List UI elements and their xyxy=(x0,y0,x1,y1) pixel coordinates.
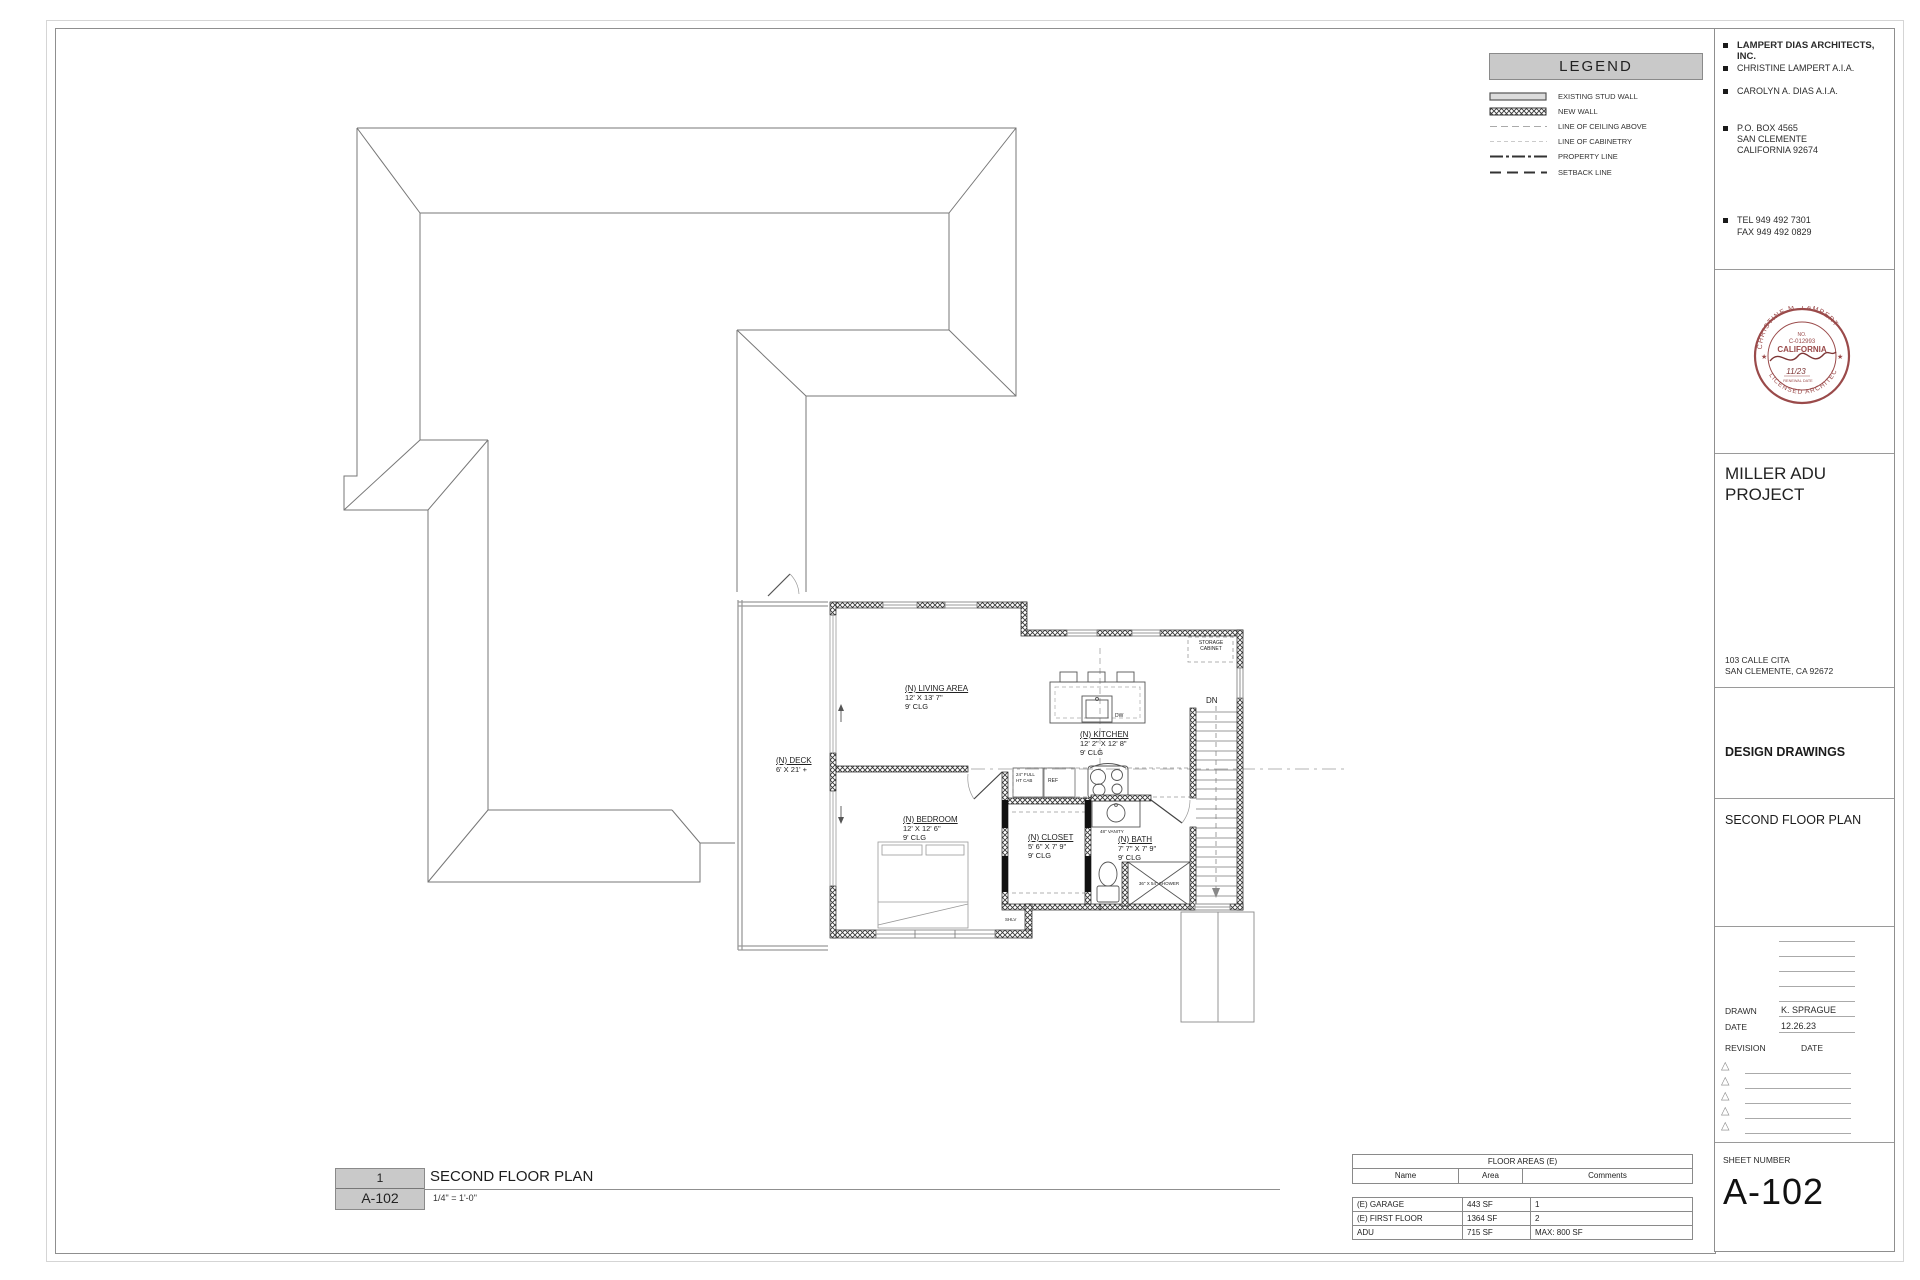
bullet-icon xyxy=(1723,218,1728,223)
stamp-star-right-icon: ★ xyxy=(1837,353,1843,361)
dw-label: DW xyxy=(1115,714,1123,720)
architect-1: CHRISTINE LAMPERT A.I.A. xyxy=(1737,63,1854,73)
revision-triangle-icon: △ xyxy=(1721,1076,1729,1087)
ceiling-line-symbol xyxy=(1489,121,1549,132)
revision-rule xyxy=(1745,1088,1851,1089)
floor-areas-rows: (E) GARAGE 443 SF 1 (E) FIRST FLOOR 1364… xyxy=(1352,1197,1693,1240)
door-slide-arrows xyxy=(838,704,844,824)
setback-line-symbol xyxy=(1489,167,1549,178)
stamp-renewal-label: RENEWAL DATE xyxy=(1783,379,1813,383)
bath-label: (N) BATH 7' 7" X 7' 9" 9' CLG xyxy=(1118,835,1156,862)
drawn-value: K. SPRAGUE xyxy=(1781,1005,1836,1015)
legend-title: LEGEND xyxy=(1489,53,1703,80)
closet-label: (N) CLOSET 5' 6" X 7' 9" 9' CLG xyxy=(1028,833,1073,860)
table-row: (E) FIRST FLOOR 1364 SF 2 xyxy=(1353,1212,1692,1226)
project-address-1: 103 CALLE CITA xyxy=(1725,655,1790,665)
bullet-icon xyxy=(1723,89,1728,94)
deck-gate-door xyxy=(768,574,799,596)
revision-triangle-icon: △ xyxy=(1721,1121,1729,1132)
legend-item-property-line: PROPERTY LINE xyxy=(1489,150,1618,162)
floor-areas-spacer xyxy=(1352,1184,1693,1197)
table-row: ADU 715 SF MAX: 800 SF xyxy=(1353,1226,1692,1239)
storage-cabinet-label: STORAGE CABINET xyxy=(1191,641,1231,652)
date-value: 12.26.23 xyxy=(1781,1021,1816,1031)
firm-address-2: SAN CLEMENTE xyxy=(1737,134,1807,144)
tb-divider-1 xyxy=(1715,269,1894,270)
floor-areas-header-row: Name Area Comments xyxy=(1352,1169,1693,1184)
drawn-rule xyxy=(1779,1016,1855,1017)
revision-triangle-icon: △ xyxy=(1721,1061,1729,1072)
table-row: (E) GARAGE 443 SF 1 xyxy=(1353,1198,1692,1212)
legend-item-existing-wall: EXISTING STUD WALL xyxy=(1489,90,1638,102)
drawing-title: SECOND FLOOR PLAN xyxy=(430,1168,593,1185)
header-area: Area xyxy=(1459,1169,1523,1183)
living-room-label: (N) LIVING AREA 12' X 13' 7" 9' CLG xyxy=(905,684,968,711)
bullet-icon xyxy=(1723,126,1728,131)
sheet-title: SECOND FLOOR PLAN xyxy=(1725,813,1861,827)
blank-rule xyxy=(1779,971,1855,972)
tb-divider-6 xyxy=(1715,1142,1894,1143)
deck-label: (N) DECK 6' X 21' + xyxy=(776,756,812,774)
sheet-number: A-102 xyxy=(1723,1171,1824,1213)
full-ht-cab-label: 24" FULL HT CAB xyxy=(1016,772,1038,783)
blank-rule xyxy=(1779,956,1855,957)
floor-plan-drawing xyxy=(0,0,1920,1280)
stamp-no-label: NO. xyxy=(1798,332,1807,338)
project-title: MILLER ADU PROJECT xyxy=(1725,463,1875,505)
interior-walls xyxy=(836,708,1196,910)
floor-areas-title: FLOOR AREAS (E) xyxy=(1352,1154,1693,1169)
revision-rule xyxy=(1745,1073,1851,1074)
drawn-label: DRAWN xyxy=(1725,1006,1757,1016)
stamp-date: 11/23 xyxy=(1786,367,1806,376)
firm-tel: TEL 949 492 7301 xyxy=(1737,215,1811,225)
revision-triangle-icon: △ xyxy=(1721,1091,1729,1102)
legend-item-cabinetry: LINE OF CABINETRY xyxy=(1489,135,1632,147)
architect-2: CAROLYN A. DIAS A.I.A. xyxy=(1737,86,1838,96)
bed xyxy=(878,842,968,928)
doors xyxy=(968,772,1190,823)
detail-reference-bubble: 1 A-102 xyxy=(335,1168,425,1210)
drawing-title-rule xyxy=(425,1189,1280,1190)
floor-areas-table: FLOOR AREAS (E) Name Area Comments (E) G… xyxy=(1352,1154,1693,1240)
drawing-scale: 1/4" = 1'-0" xyxy=(433,1193,477,1203)
architect-stamp: CHRISTINE M. LAMPERT LICENSED ARCHITECT … xyxy=(1752,306,1852,406)
bullet-icon xyxy=(1723,66,1728,71)
firm-fax: FAX 949 492 0829 xyxy=(1737,227,1812,237)
revision-rule xyxy=(1745,1118,1851,1119)
revision-date-label: DATE xyxy=(1801,1043,1823,1053)
stairs xyxy=(1196,706,1237,898)
project-address-2: SAN CLEMENTE, CA 92672 xyxy=(1725,666,1833,676)
revision-rule xyxy=(1745,1133,1851,1134)
sheet-number-label: SHEET NUMBER xyxy=(1723,1155,1790,1165)
detail-number: 1 xyxy=(336,1169,424,1189)
tb-divider-5 xyxy=(1715,926,1894,927)
kitchen-label: (N) KITCHEN 12' 2" X 12' 8" 9' CLG xyxy=(1080,730,1128,757)
firm-address-3: CALIFORNIA 92674 xyxy=(1737,145,1818,155)
blank-rule xyxy=(1779,1001,1855,1002)
date-rule xyxy=(1779,1032,1855,1033)
firm-name: LAMPERT DIAS ARCHITECTS, INC. xyxy=(1737,40,1894,62)
legend-item-new-wall: NEW WALL xyxy=(1489,105,1598,117)
legend-item-setback-line: SETBACK LINE xyxy=(1489,166,1612,178)
vanity-label: 48" VANITY xyxy=(1100,829,1124,835)
lower-roof-outline xyxy=(1181,912,1254,1022)
deck-railing xyxy=(738,600,828,950)
title-block: LAMPERT DIAS ARCHITECTS, INC. CHRISTINE … xyxy=(1714,28,1895,1252)
tb-divider-3 xyxy=(1715,687,1894,688)
detail-sheet-number: A-102 xyxy=(336,1189,424,1208)
revision-label: REVISION xyxy=(1725,1043,1766,1053)
property-line-symbol xyxy=(1489,151,1549,162)
date-label: DATE xyxy=(1725,1022,1747,1032)
stamp-star-left-icon: ★ xyxy=(1761,353,1767,361)
kitchen-counter xyxy=(1013,768,1190,797)
existing-stud-wall-symbol xyxy=(1489,91,1549,102)
blank-rule xyxy=(1779,941,1855,942)
header-name: Name xyxy=(1353,1169,1459,1183)
bullet-icon xyxy=(1723,43,1728,48)
tb-divider-2 xyxy=(1715,453,1894,454)
kitchen-island xyxy=(1050,672,1145,723)
blank-rule xyxy=(1779,986,1855,987)
shower-label: 36" X 54" SHOWER xyxy=(1128,881,1190,887)
legend: LEGEND EXISTING STUD WALL NEW WALL LINE … xyxy=(1489,53,1705,80)
shlv-label: SHLV xyxy=(1005,917,1016,923)
revision-rule xyxy=(1745,1103,1851,1104)
ref-label: REF xyxy=(1048,779,1058,785)
revision-triangle-icon: △ xyxy=(1721,1106,1729,1117)
drawing-sheet: (N) LIVING AREA 12' X 13' 7" 9' CLG (N) … xyxy=(0,0,1920,1280)
tb-divider-4 xyxy=(1715,798,1894,799)
cabinetry-line-symbol xyxy=(1489,136,1549,147)
header-comments: Comments xyxy=(1523,1169,1692,1183)
bedroom-label: (N) BEDROOM 12' X 12' 6" 9' CLG xyxy=(903,815,958,842)
firm-address-1: P.O. BOX 4565 xyxy=(1737,123,1798,133)
phase-label: DESIGN DRAWINGS xyxy=(1725,745,1845,759)
new-wall-symbol xyxy=(1489,106,1549,117)
stairs-dn-label: DN xyxy=(1206,696,1218,705)
legend-item-ceiling-above: LINE OF CEILING ABOVE xyxy=(1489,120,1647,132)
